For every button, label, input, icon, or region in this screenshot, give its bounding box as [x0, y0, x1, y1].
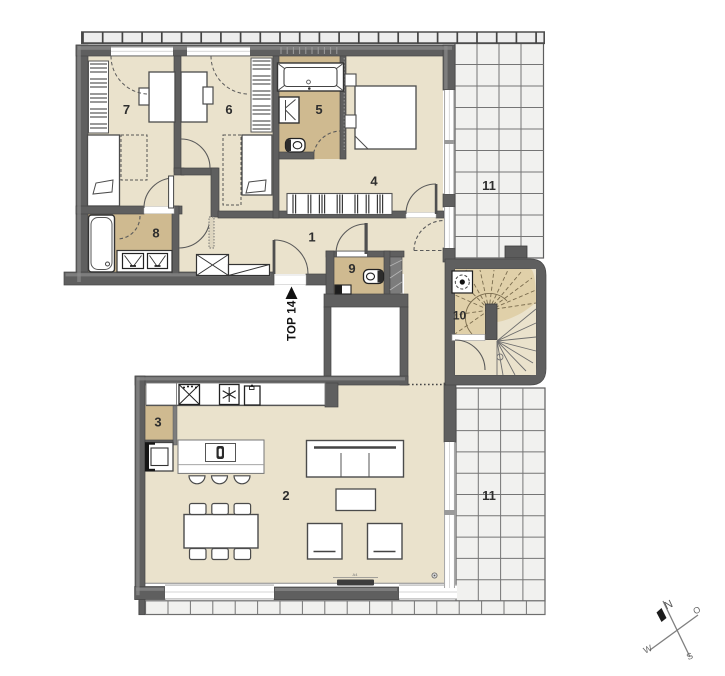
- svg-text:3: 3: [154, 415, 161, 430]
- svg-text:4: 4: [370, 174, 378, 189]
- svg-text:A4: A4: [353, 572, 359, 577]
- svg-text:5: 5: [315, 102, 322, 117]
- svg-text:6: 6: [225, 102, 232, 117]
- svg-text:11: 11: [482, 178, 496, 193]
- svg-text:1: 1: [308, 230, 315, 245]
- svg-text:TOP 14: TOP 14: [287, 300, 299, 341]
- svg-text:11: 11: [482, 488, 496, 503]
- svg-text:8: 8: [152, 226, 159, 241]
- svg-text:7: 7: [123, 102, 130, 117]
- svg-text:10: 10: [453, 309, 467, 323]
- svg-text:2: 2: [282, 488, 289, 503]
- svg-text:9: 9: [348, 261, 355, 276]
